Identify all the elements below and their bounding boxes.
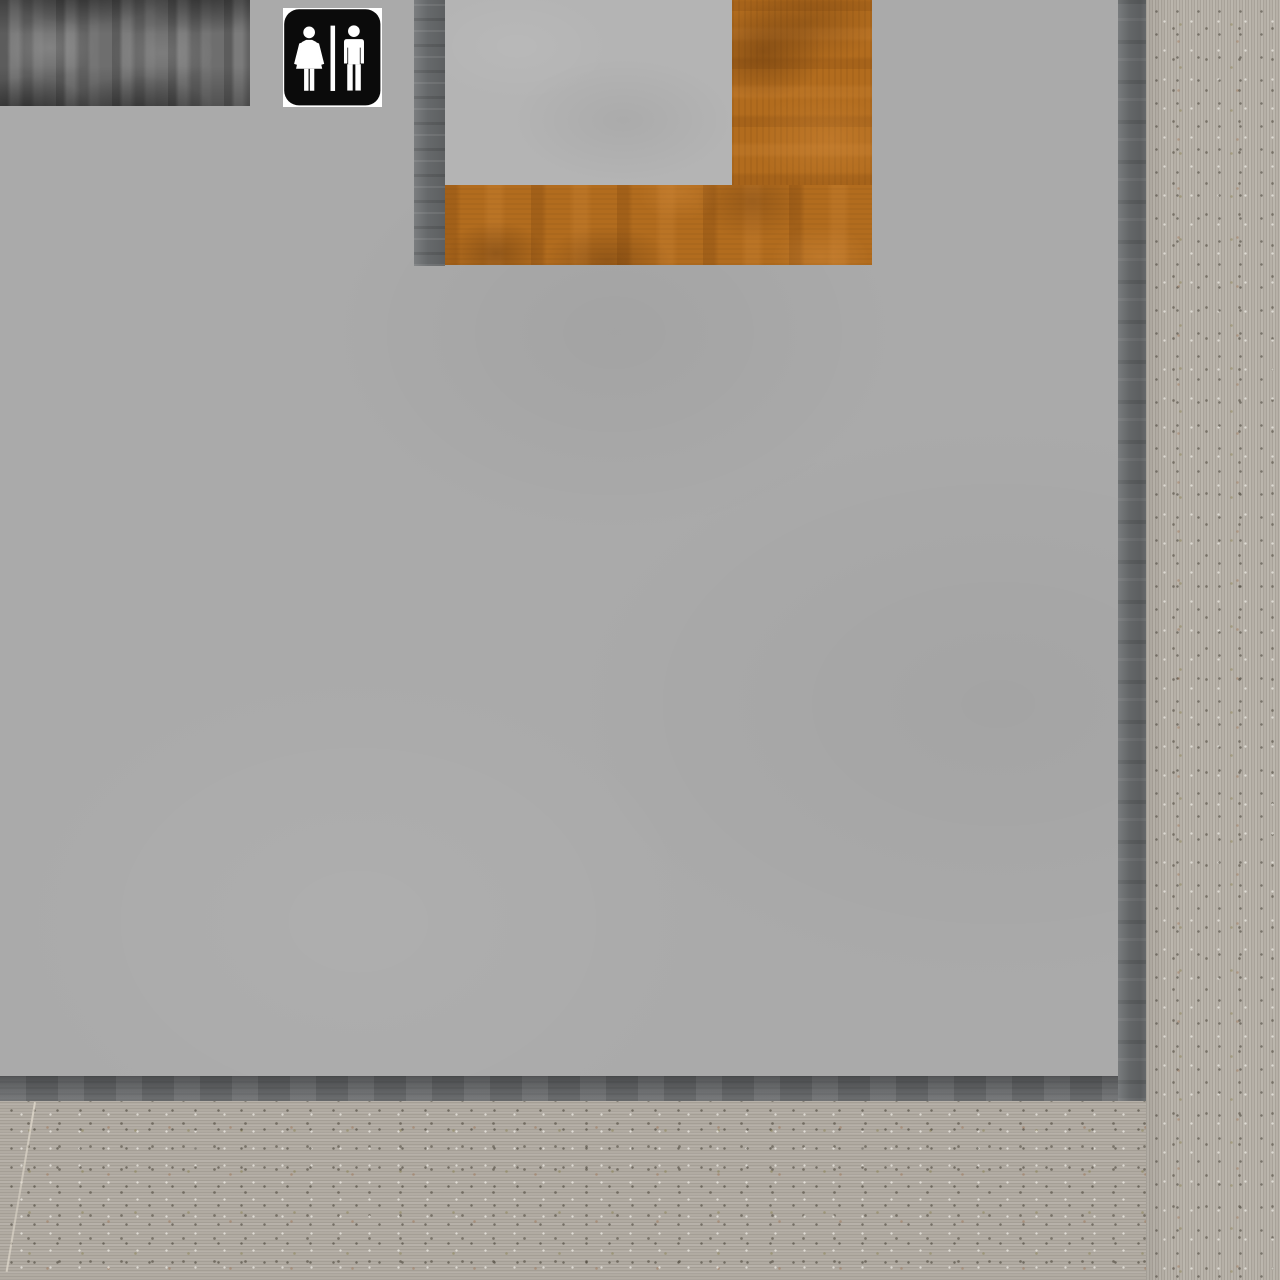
- wall-niche-trim-strip: [414, 0, 445, 266]
- carpet-floor: [0, 1101, 1146, 1280]
- wall-right-trim: [1118, 0, 1146, 1101]
- restroom-sign[interactable]: [283, 8, 382, 107]
- baseboard: [0, 1076, 1118, 1101]
- wood-trim-horizontal: [445, 185, 872, 265]
- dark-wood-panel: [0, 0, 250, 106]
- restroom-sign-icon: [283, 8, 382, 107]
- divider-bar: [331, 26, 336, 91]
- scene-root: [0, 0, 1280, 1280]
- concrete-column: [1146, 0, 1280, 1280]
- wall-niche-panel: [445, 0, 732, 185]
- wood-trim-vertical: [732, 0, 872, 185]
